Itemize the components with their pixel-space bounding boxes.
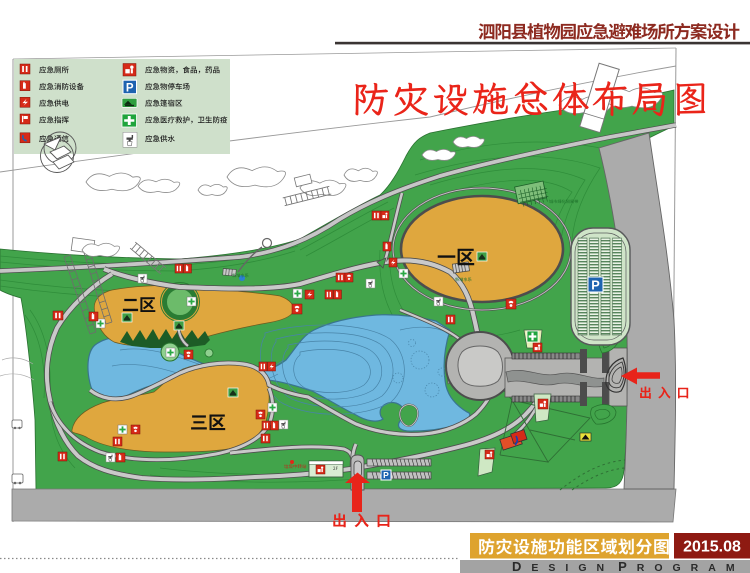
svg-text:DESIGNPROGRAM: DESIGNPROGRAM: [512, 559, 745, 573]
svg-text:2015.08: 2015.08: [683, 539, 741, 556]
svg-text:P: P: [126, 82, 134, 94]
svg-text:P: P: [383, 470, 389, 480]
svg-text:P: P: [591, 277, 600, 292]
